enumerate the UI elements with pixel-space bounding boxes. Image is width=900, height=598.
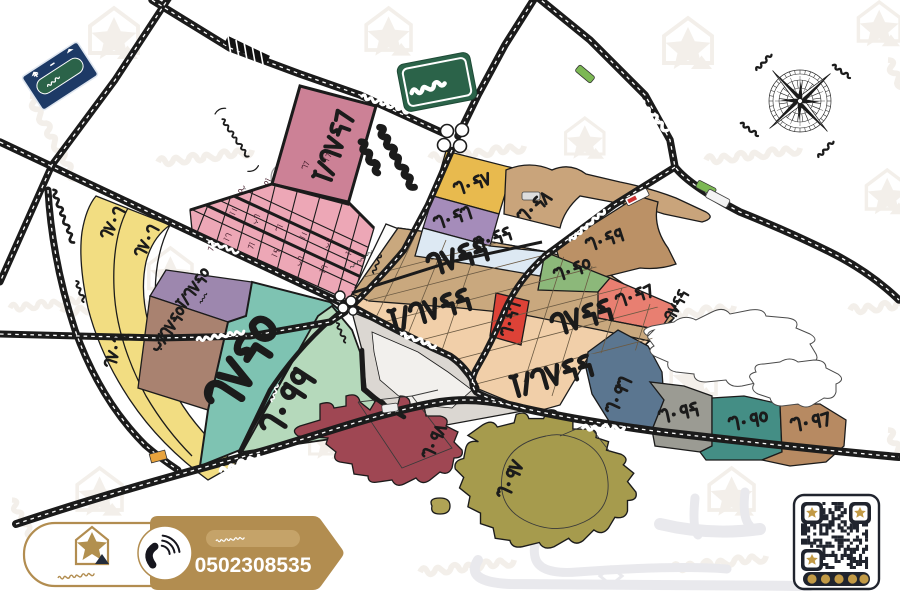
svg-text:0502308535: 0502308535 (195, 554, 312, 577)
